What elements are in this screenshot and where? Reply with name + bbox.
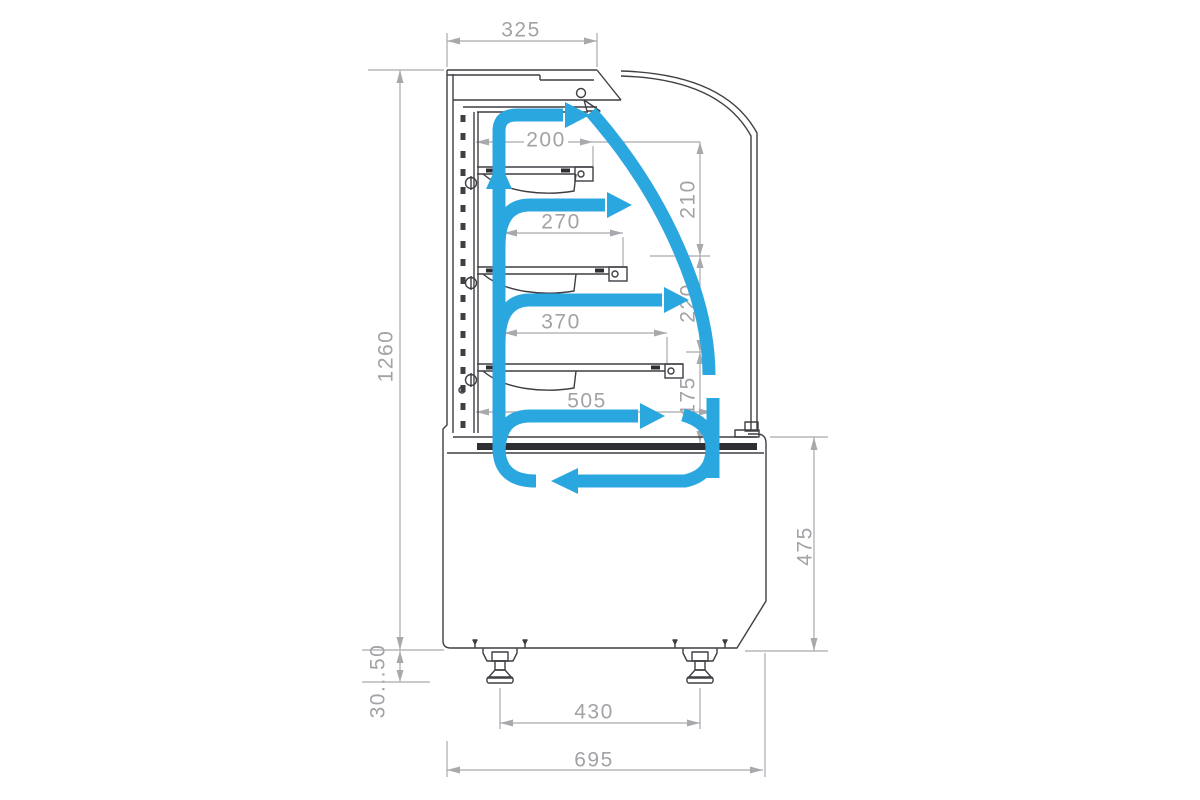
dim-label-gap-top: 210 (678, 179, 699, 219)
arrow-shelf1-icon (607, 192, 632, 218)
dim-label-overall-depth: 695 (574, 750, 614, 771)
dim-label-leg-adjustment: 30...50 (368, 644, 389, 719)
dimension-arrowheads (397, 38, 818, 774)
airflow-branch-3 (499, 416, 638, 453)
leg-right (673, 640, 727, 683)
front-sill (735, 430, 759, 437)
dim-label-canopy-depth: 325 (501, 20, 541, 41)
dim-label-overall-height: 1260 (376, 330, 397, 383)
case-outline (443, 70, 766, 683)
technical-drawing: 325 200 270 370 505 1260 210 220 175 475… (0, 0, 1200, 800)
arrow-up-icon (486, 160, 512, 189)
panel-hole (459, 387, 465, 393)
dim-label-gap-bottom: 175 (678, 376, 699, 416)
dim-label-shelf3-depth: 370 (541, 312, 581, 333)
dim-label-leg-spacing: 430 (574, 702, 614, 723)
arrow-shelf3-icon (640, 403, 665, 429)
glass-foot (745, 422, 758, 431)
arrow-top-right-icon (565, 102, 590, 128)
lamp-icon (577, 89, 586, 98)
airflow-return-duct (578, 415, 712, 481)
deck-band (477, 443, 757, 450)
dim-label-shelf1-depth: 200 (526, 130, 566, 151)
arrow-return-left-icon (551, 468, 578, 494)
dim-label-shelf2-depth: 270 (541, 212, 581, 233)
leg-left (473, 640, 527, 683)
airflow-curtain-arc (591, 112, 709, 375)
airflow-riser (499, 115, 563, 481)
dim-label-gap-middle: 220 (678, 283, 699, 323)
dim-label-deck-depth: 505 (567, 391, 607, 412)
lamp-bracket (584, 100, 600, 111)
shelf-3 (466, 364, 684, 390)
shelves (466, 167, 758, 450)
shelf-1 (466, 167, 594, 193)
shelf-2 (466, 267, 628, 293)
cabinet-profile (443, 70, 766, 648)
dim-label-base-height: 475 (795, 526, 816, 566)
airflow-arrowheads (486, 102, 689, 494)
